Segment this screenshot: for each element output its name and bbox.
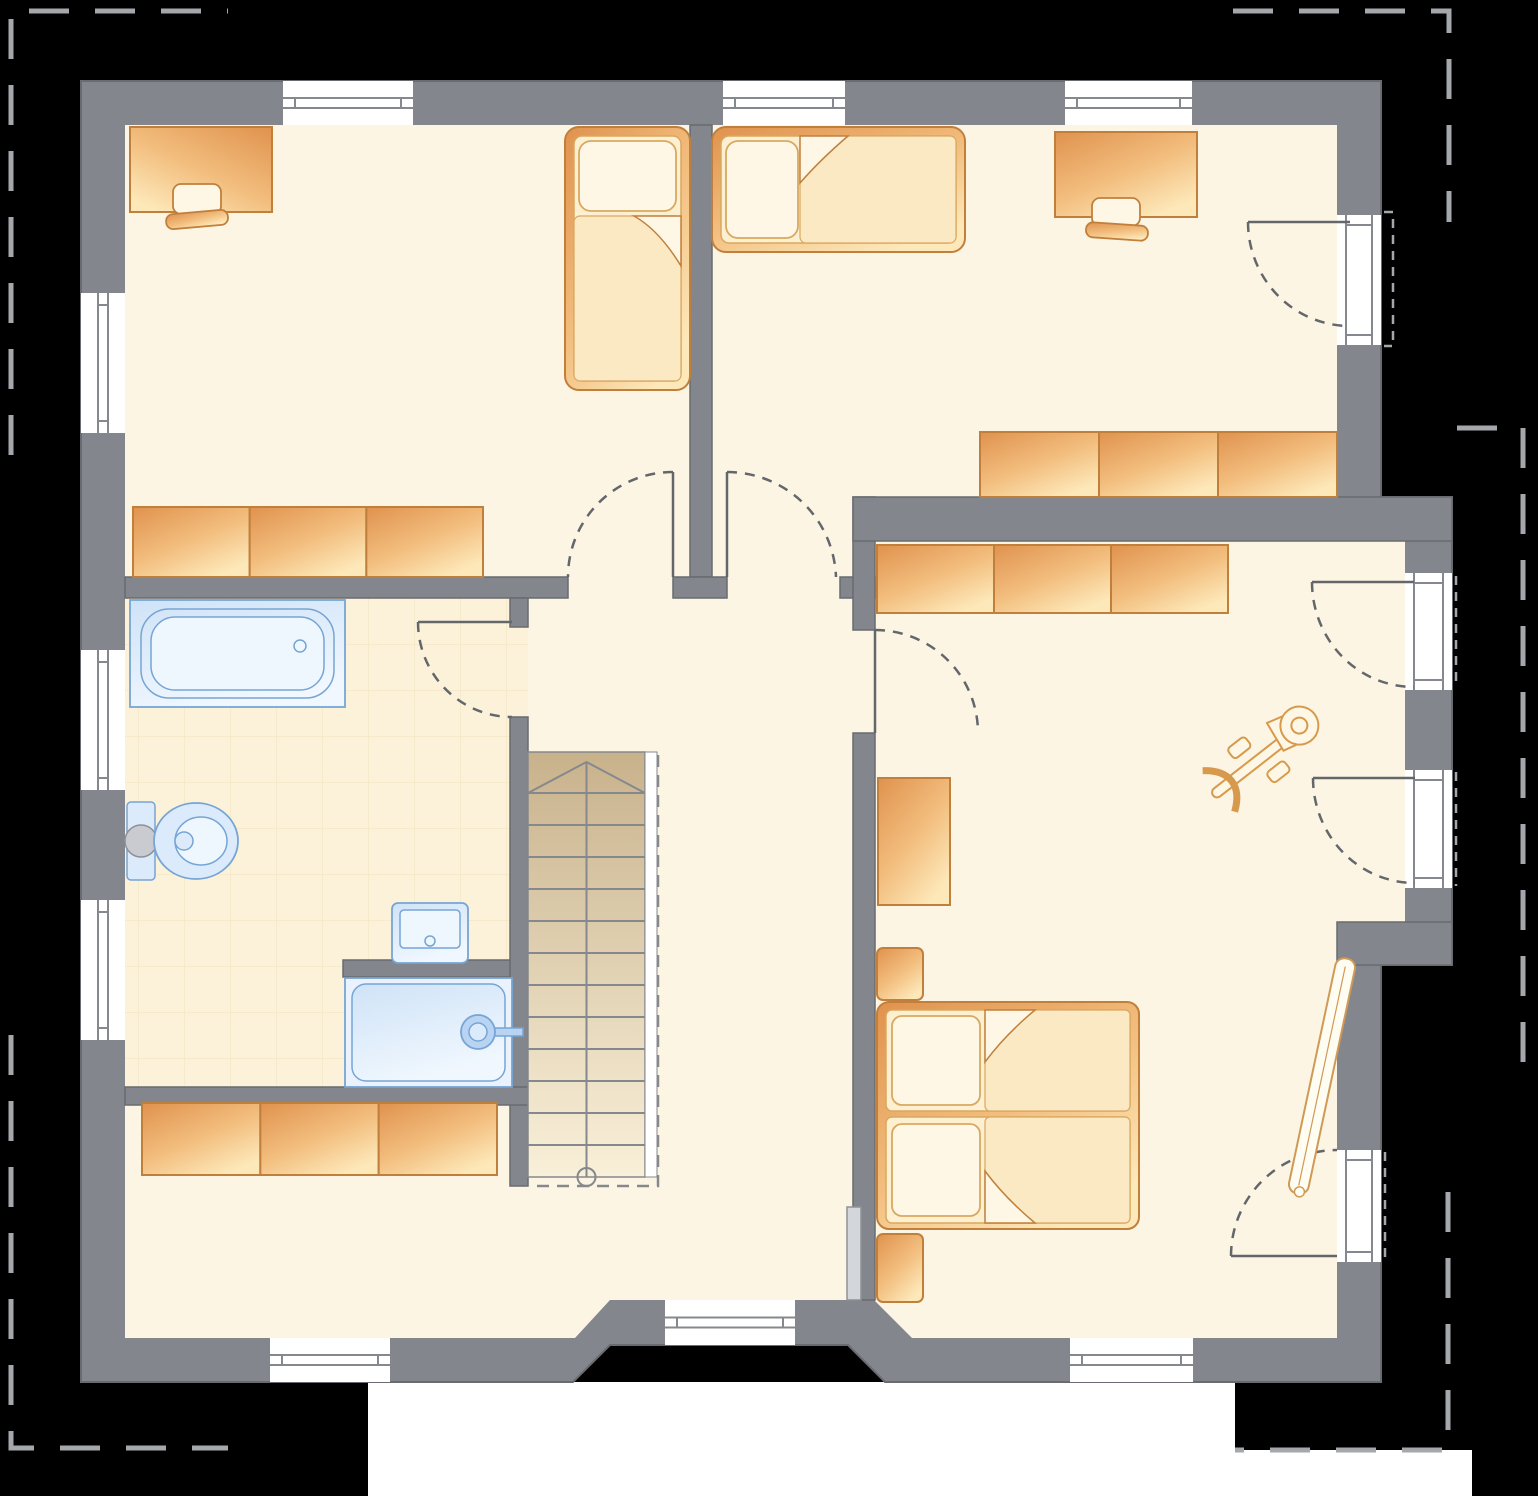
- shower-head-inner: [469, 1023, 487, 1041]
- window-5: [81, 650, 125, 790]
- door-opening: [1337, 1150, 1381, 1262]
- bathtub: [130, 600, 345, 707]
- staircase: [528, 752, 658, 1186]
- wall-step-right: [1337, 922, 1452, 965]
- wall-bath-door-stub: [510, 598, 528, 627]
- sideboard-segment: [133, 507, 250, 577]
- sideboard-segment: [379, 1103, 497, 1175]
- balcony-door-2: [1405, 573, 1452, 690]
- sideboard-3: [877, 545, 1228, 613]
- window-opening: [1070, 1338, 1193, 1382]
- wall-under-top-rooms: [853, 497, 1452, 541]
- balcony-door-3: [1405, 770, 1452, 888]
- toilet-flush: [125, 825, 157, 857]
- double-bed: [877, 1002, 1139, 1229]
- nightstand-bottom: [877, 1234, 923, 1302]
- sideboard-segment: [366, 507, 483, 577]
- washbasin: [392, 903, 468, 963]
- window-opening: [81, 650, 125, 790]
- nightstand-top: [877, 948, 923, 1000]
- desk-chair-seat: [1092, 198, 1140, 226]
- stair-stringer: [645, 752, 657, 1177]
- window-7: [270, 1338, 390, 1382]
- balcony-door-1: [1337, 215, 1381, 345]
- wall-between-children-rooms: [690, 125, 712, 577]
- window-opening: [1065, 81, 1192, 125]
- window-opening: [665, 1300, 795, 1345]
- sideboard-segment: [980, 432, 1099, 497]
- sideboard-segment: [877, 545, 994, 613]
- toilet: [125, 802, 238, 880]
- window-3: [1065, 81, 1192, 125]
- desk-chair-seat: [173, 184, 221, 214]
- bed-pillow-upper: [892, 1016, 980, 1105]
- floor-plan-svg: [0, 0, 1538, 1496]
- page-black-corner: [1473, 1463, 1538, 1496]
- tub-basin: [151, 617, 324, 690]
- single-bed-vertical: [565, 127, 690, 390]
- bed-pillow: [579, 141, 676, 211]
- sideboard-segment: [250, 507, 367, 577]
- window-6: [81, 900, 125, 1040]
- wardrobe: [878, 778, 950, 905]
- sideboard-2: [980, 432, 1337, 497]
- desk-chair-back: [1086, 222, 1149, 241]
- sideboard-segment: [1111, 545, 1228, 613]
- door-opening: [1405, 573, 1452, 690]
- sideboard-4: [142, 1103, 497, 1175]
- floor-plan-page: [0, 0, 1538, 1496]
- window-8: [665, 1300, 795, 1345]
- shower: [345, 978, 523, 1087]
- window-opening: [283, 81, 413, 125]
- page-white-band: [368, 1382, 1235, 1496]
- door-opening: [1405, 770, 1452, 888]
- wall-stair-side: [510, 717, 528, 1186]
- window-opening: [81, 900, 125, 1040]
- bed-pillow: [726, 141, 798, 238]
- window-opening: [723, 81, 845, 125]
- bed-pillow-lower: [892, 1124, 980, 1216]
- door-opening: [1337, 215, 1381, 345]
- sideboard-segment: [994, 545, 1111, 613]
- sliding-door-leaf: [847, 1207, 861, 1300]
- balcony-door-4: [1337, 1150, 1381, 1262]
- wall-childroom-bath: [125, 577, 568, 598]
- basin-inner: [400, 910, 460, 948]
- sideboard-segment: [1218, 432, 1337, 497]
- window-opening: [270, 1338, 390, 1382]
- page-white-band-right: [1235, 1450, 1472, 1496]
- window-opening: [81, 293, 125, 433]
- sideboard-segment: [260, 1103, 378, 1175]
- window-1: [283, 81, 413, 125]
- sideboard-1: [133, 507, 483, 577]
- window-2: [723, 81, 845, 125]
- sideboard-segment: [142, 1103, 260, 1175]
- window-4: [81, 293, 125, 433]
- toilet-drain: [175, 832, 193, 850]
- wall-door-post: [673, 577, 727, 598]
- sideboard-segment: [1099, 432, 1218, 497]
- window-9: [1070, 1338, 1193, 1382]
- single-bed-horizontal: [712, 127, 965, 252]
